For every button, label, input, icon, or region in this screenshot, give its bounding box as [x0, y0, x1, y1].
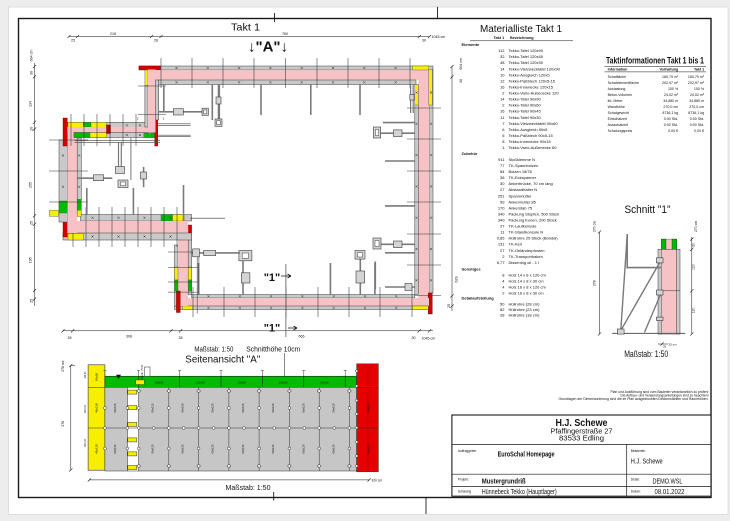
svg-text:25: 25 [30, 299, 34, 303]
svg-text:90x120: 90x120 [301, 444, 305, 454]
svg-text:8736,1 kg: 8736,1 kg [688, 111, 704, 115]
svg-text:34,880 m: 34,880 m [689, 99, 704, 103]
svg-text:38: 38 [500, 175, 505, 180]
svg-text:45x120: 45x120 [95, 403, 99, 413]
svg-text:28: 28 [154, 39, 158, 43]
svg-text:Information: Information [608, 67, 628, 71]
svg-text:Mustergrundriß: Mustergrundriß [482, 479, 527, 486]
svg-text:Einschalzeit: Einschalzeit [608, 117, 627, 121]
svg-text:EuroSchal Homepage: EuroSchal Homepage [498, 452, 555, 459]
svg-text:TK-Transporthaken: TK-Transporthaken [509, 254, 543, 259]
svg-text:50: 50 [500, 301, 505, 306]
svg-text:120x30: 120x30 [320, 380, 329, 384]
svg-text:Schnitt "1": Schnitt "1" [625, 204, 671, 216]
svg-text:90x120: 90x120 [113, 403, 117, 413]
svg-text:H.J. Schewe: H.J. Schewe [631, 459, 663, 466]
svg-text:Tekko-Tafel 90x30: Tekko-Tafel 90x30 [509, 115, 542, 120]
svg-text:270,0 cm: 270,0 cm [663, 105, 678, 109]
svg-text:TK-Geländerpfosten: TK-Geländerpfosten [509, 248, 545, 253]
svg-text:59: 59 [500, 199, 505, 204]
svg-text:90x120: 90x120 [367, 444, 371, 454]
svg-text:760: 760 [282, 32, 288, 36]
svg-text:25: 25 [447, 304, 451, 308]
svg-text:Tekko-Tafel 90x45: Tekko-Tafel 90x45 [509, 109, 542, 114]
svg-text:112: 112 [498, 48, 505, 53]
svg-text:25: 25 [71, 39, 75, 43]
svg-text:0,85: 0,85 [497, 236, 506, 241]
svg-text:14: 14 [500, 66, 505, 71]
svg-text:278: 278 [61, 421, 65, 427]
svg-text:Bolzen 18/76: Bolzen 18/76 [509, 169, 533, 174]
svg-text:82: 82 [500, 307, 505, 312]
svg-text:278: 278 [592, 280, 596, 286]
svg-text:Wandhöhe: Wandhöhe [608, 105, 625, 109]
svg-text:16: 16 [500, 109, 505, 114]
svg-text:Tekko-Innenecke 120x15: Tekko-Innenecke 120x15 [509, 84, 554, 89]
svg-text:Schalung: Schalung [458, 490, 472, 494]
svg-text:Beton-Volumen: Beton-Volumen [608, 93, 633, 97]
svg-text:1045 cm: 1045 cm [422, 337, 436, 341]
svg-text:24,02 m³: 24,02 m³ [664, 93, 679, 97]
svg-text:664 cm: 664 cm [30, 50, 34, 62]
svg-text:Ankermutter 85: Ankermutter 85 [509, 199, 537, 204]
svg-text:Auslastung: Auslastung [608, 87, 626, 91]
svg-text:34,880 m: 34,880 m [663, 99, 678, 103]
svg-text:77: 77 [500, 163, 505, 168]
svg-text:255: 255 [29, 182, 33, 188]
svg-text:Tekko-Tafel 120x45: Tekko-Tafel 120x45 [509, 54, 544, 59]
svg-text:180,79 m²: 180,79 m² [662, 75, 679, 79]
svg-text:Materialliste Takt 1: Materialliste Takt 1 [480, 24, 562, 35]
svg-text:Schalelementfläche: Schalelementfläche [608, 81, 639, 85]
svg-text:Takt 1: Takt 1 [231, 21, 260, 33]
svg-text:90x120: 90x120 [181, 403, 185, 413]
svg-text:Ausschalzeit: Ausschalzeit [608, 123, 628, 127]
svg-text:90x120: 90x120 [113, 444, 117, 454]
svg-text:120x30: 120x30 [237, 380, 246, 384]
svg-text:28: 28 [500, 313, 505, 318]
svg-text:30: 30 [500, 181, 505, 186]
svg-text:666: 666 [299, 335, 305, 339]
svg-text:↓"A"↓: ↓"A"↓ [248, 39, 288, 56]
svg-text:Packung Stopfen, 500 Stück: Packung Stopfen, 500 Stück [509, 211, 559, 216]
svg-text:Taktinformationen Takt 1 bis: Taktinformationen Takt 1 bis 1 [606, 55, 704, 65]
svg-text:Anschl. 15x30: Anschl. 15x30 [141, 364, 144, 379]
svg-text:83533 Edling: 83533 Edling [559, 434, 604, 443]
svg-text:6,77: 6,77 [497, 260, 506, 265]
svg-text:DEMO.WSL: DEMO.WSL [653, 479, 683, 486]
svg-text:Seitenansicht "A": Seitenansicht "A" [185, 354, 260, 366]
svg-text:10: 10 [500, 72, 505, 77]
svg-text:Detail:: Detail: [631, 478, 640, 482]
svg-text:Hüllrohre (18 cm): Hüllrohre (18 cm) [509, 313, 541, 318]
svg-text:24,02 m³: 24,02 m³ [690, 93, 705, 97]
svg-text:Hünnebeck Tekko (Hauptlager): Hünnebeck Tekko (Hauptlager) [482, 489, 557, 496]
svg-text:Schalfläche: Schalfläche [608, 75, 627, 79]
svg-text:120x30: 120x30 [155, 380, 164, 384]
svg-text:48: 48 [500, 60, 505, 65]
svg-text:202,97 m²: 202,97 m² [662, 81, 679, 85]
svg-text:Tekko-Vielzwecktafel 90x60: Tekko-Vielzwecktafel 90x60 [509, 121, 559, 126]
svg-text:lfd. Meter: lfd. Meter [608, 99, 624, 103]
svg-text:90x120: 90x120 [241, 444, 245, 454]
svg-text:TK-Standkonsole N: TK-Standkonsole N [509, 230, 544, 235]
svg-text:TK-Spannbolzen: TK-Spannbolzen [509, 163, 539, 168]
svg-text:911: 911 [498, 157, 505, 162]
svg-text:25: 25 [663, 345, 667, 349]
svg-text:Hüllrohre 25 Stück (Bündel): Hüllrohre 25 Stück (Bündel) [509, 236, 559, 241]
svg-text:134: 134 [29, 101, 33, 107]
svg-text:14: 14 [500, 97, 505, 102]
svg-text:84: 84 [500, 169, 505, 174]
svg-text:30: 30 [459, 79, 463, 83]
svg-text:170: 170 [498, 205, 505, 210]
svg-text:Detailaufstellung: Detailaufstellung [462, 296, 495, 301]
svg-text:25 cm: 25 cm [669, 343, 678, 347]
svg-text:340: 340 [498, 211, 505, 216]
svg-text:30: 30 [692, 243, 696, 247]
svg-text:202,97 m²: 202,97 m² [688, 81, 705, 85]
svg-text:16: 16 [500, 84, 505, 89]
svg-text:TK-Eckspanner: TK-Eckspanner [509, 175, 537, 180]
svg-text:604 cm: 604 cm [459, 58, 463, 70]
svg-text:Spannmutter: Spannmutter [509, 193, 533, 198]
svg-text:8736,1 kg: 8736,1 kg [662, 111, 678, 115]
svg-text:0:00 Std.: 0:00 Std. [690, 123, 704, 127]
svg-text:278 cm: 278 cm [61, 360, 65, 371]
svg-text:Maßstab: 1:50: Maßstab: 1:50 [226, 483, 271, 492]
svg-text:90x120: 90x120 [331, 444, 335, 454]
svg-text:27: 27 [500, 224, 505, 229]
svg-text:30: 30 [30, 71, 34, 75]
svg-text:90x120: 90x120 [151, 444, 155, 454]
svg-text:270 cm: 270 cm [592, 221, 596, 232]
svg-text:629: 629 [455, 277, 459, 283]
svg-text:100 %: 100 % [668, 87, 679, 91]
svg-text:Datum:: Datum: [631, 490, 641, 494]
svg-text:08.01.2022: 08.01.2022 [655, 489, 685, 496]
svg-text:1045 cm: 1045 cm [432, 35, 446, 39]
svg-text:90x120: 90x120 [367, 403, 371, 413]
svg-text:0:00 Std.: 0:00 Std. [664, 117, 678, 121]
svg-text:Bezeichnung: Bezeichnung [510, 36, 534, 40]
svg-text:120x30: 120x30 [196, 380, 205, 384]
svg-text:Tekko-Paßblech 90x5-15: Tekko-Paßblech 90x5-15 [509, 133, 554, 138]
svg-text:90x120: 90x120 [211, 444, 215, 454]
svg-text:TK-Keil: TK-Keil [509, 242, 522, 247]
svg-text:Schnitthöhe 10cm: Schnitthöhe 10cm [246, 347, 300, 354]
svg-text:45x120: 45x120 [95, 444, 99, 454]
svg-text:Tekko-Innenecke 90x15: Tekko-Innenecke 90x15 [509, 139, 552, 144]
svg-text:AW 120: AW 120 [84, 404, 87, 413]
svg-text:Holz 14 x 8 x 120 cm: Holz 14 x 8 x 120 cm [509, 272, 547, 277]
svg-text:120x30: 120x30 [279, 380, 288, 384]
svg-text:"1": "1" [264, 323, 281, 335]
svg-text:308: 308 [126, 335, 132, 339]
svg-text:Holz 16 x 8 x 120 cm: Holz 16 x 8 x 120 cm [509, 285, 547, 290]
svg-text:AW 60: AW 60 [84, 371, 87, 379]
svg-text:0,00 €: 0,00 € [668, 129, 678, 133]
svg-text:90x120: 90x120 [151, 403, 155, 413]
svg-text:Tekko-Paßblech 120x5-15: Tekko-Paßblech 120x5-15 [509, 78, 556, 83]
svg-text:Grundlagen der Dimensionierung: Grundlagen der Dimensionierung sind die … [559, 397, 709, 401]
svg-text:Holz 16 x 8 x 30 cm: Holz 16 x 8 x 30 cm [509, 291, 545, 296]
svg-text:Tekko-Tafel 120x90: Tekko-Tafel 120x90 [509, 48, 544, 53]
svg-text:Packung Konen, 200 Stück: Packung Konen, 200 Stück [509, 218, 557, 223]
svg-text:Hüllrohre (23 cm): Hüllrohre (23 cm) [509, 307, 541, 312]
svg-text:120: 120 [692, 307, 696, 313]
svg-text:90x120: 90x120 [331, 403, 335, 413]
svg-text:Hüllrohre (28 cm): Hüllrohre (28 cm) [509, 301, 541, 306]
svg-text:Tekko-Tafel 120x30: Tekko-Tafel 120x30 [509, 60, 544, 65]
svg-text:30: 30 [422, 39, 426, 43]
svg-text:Vorhaltung: Vorhaltung [659, 67, 678, 71]
svg-text:180,79 m²: 180,79 m² [688, 75, 705, 79]
svg-text:Tekko-Vario-Außenecke 60: Tekko-Vario-Außenecke 60 [509, 145, 558, 150]
svg-text:28: 28 [68, 336, 72, 340]
svg-text:Tekko-Ausgleich 120x5: Tekko-Ausgleich 120x5 [509, 72, 551, 77]
svg-text:195: 195 [29, 257, 33, 263]
svg-text:25: 25 [30, 221, 34, 225]
svg-text:0:00 Std.: 0:00 Std. [664, 123, 678, 127]
svg-text:Schalgewicht: Schalgewicht [608, 111, 629, 115]
svg-text:Projekt:: Projekt: [458, 478, 469, 482]
svg-text:Zubehör: Zubehör [462, 151, 478, 156]
svg-text:Takt 1: Takt 1 [694, 67, 704, 71]
svg-text:AW 120: AW 120 [84, 438, 87, 447]
svg-text:120: 120 [692, 264, 696, 270]
svg-text:Bearbeiter: Bearbeiter [631, 449, 647, 453]
svg-text:Maßstab: 1:50: Maßstab: 1:50 [624, 349, 668, 360]
svg-text:0:00 Std.: 0:00 Std. [690, 117, 704, 121]
svg-text:Tekko-Tafel 90x90: Tekko-Tafel 90x90 [509, 97, 542, 102]
svg-text:Ankerstab 75: Ankerstab 75 [509, 205, 533, 210]
svg-text:27: 27 [500, 187, 505, 192]
svg-text:90x120: 90x120 [271, 403, 275, 413]
svg-text:28: 28 [179, 336, 183, 340]
svg-text:12: 12 [500, 78, 505, 83]
svg-text:131: 131 [498, 242, 505, 247]
svg-text:"1": "1" [264, 272, 281, 284]
svg-text:27: 27 [500, 248, 505, 253]
svg-text:Tekko-Ausgleich 90x5: Tekko-Ausgleich 90x5 [509, 127, 549, 132]
svg-text:90x120: 90x120 [241, 403, 245, 413]
svg-text:Tekko-Tafel 90x60: Tekko-Tafel 90x60 [509, 103, 542, 108]
svg-text:Dissening oil - 1 l: Dissening oil - 1 l [509, 260, 540, 265]
svg-text:32: 32 [500, 54, 505, 59]
svg-text:Abstandhalter N: Abstandhalter N [509, 187, 538, 192]
svg-text:45x60: 45x60 [95, 373, 99, 382]
svg-text:Stoßklemme N: Stoßklemme N [509, 157, 536, 162]
svg-text:Holz 14 x 8 x 30 cm: Holz 14 x 8 x 30 cm [509, 278, 545, 283]
svg-text:20: 20 [30, 127, 34, 131]
svg-text:Ankerbrücke, 70 cm lang: Ankerbrücke, 70 cm lang [509, 181, 553, 186]
svg-text:100 %: 100 % [694, 87, 705, 91]
svg-text:30: 30 [412, 336, 416, 340]
svg-text:90x120: 90x120 [301, 403, 305, 413]
svg-text:218: 218 [110, 32, 116, 36]
svg-text:90x120: 90x120 [211, 403, 215, 413]
svg-text:90x120: 90x120 [271, 444, 275, 454]
svg-text:TK-Laufkonsole: TK-Laufkonsole [509, 224, 538, 229]
svg-text:Takt 1: Takt 1 [494, 36, 505, 40]
svg-text:270,0 cm: 270,0 cm [689, 105, 704, 109]
svg-text:Schalungspreis: Schalungspreis [608, 129, 633, 133]
svg-text:Tekko-Vario-Außenecke 120: Tekko-Vario-Außenecke 120 [509, 91, 560, 96]
svg-text:Elemente: Elemente [462, 42, 481, 47]
svg-text:0,00 €: 0,00 € [694, 129, 704, 133]
svg-text:251: 251 [498, 193, 505, 198]
svg-text:270 cm: 270 cm [694, 221, 698, 232]
svg-text:Maßstab: 1:50: Maßstab: 1:50 [194, 347, 233, 354]
svg-text:90x120: 90x120 [181, 444, 185, 454]
svg-text:340: 340 [498, 218, 505, 223]
svg-text:Auftraggeber: Auftraggeber [458, 449, 477, 453]
svg-text:810 cm: 810 cm [372, 479, 383, 483]
svg-text:Sonstiges: Sonstiges [462, 266, 482, 271]
svg-text:Tekko-Vielzwecktafel 120x90: Tekko-Vielzwecktafel 120x90 [509, 66, 561, 71]
